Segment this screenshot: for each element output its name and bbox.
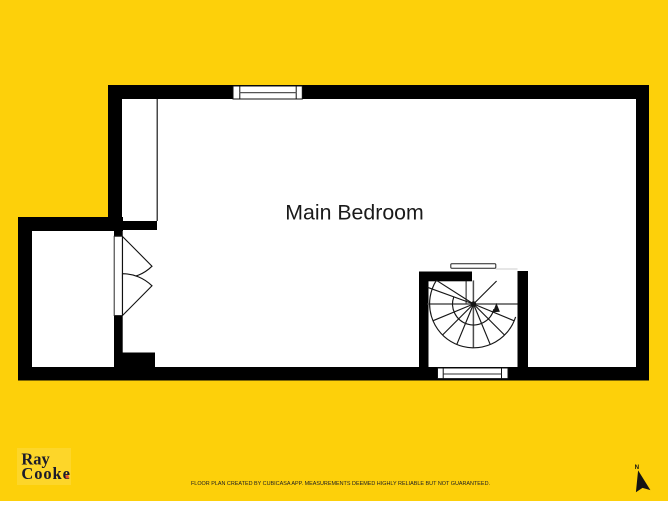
- svg-text:Cooke: Cooke: [21, 464, 70, 483]
- svg-text:N: N: [635, 464, 640, 471]
- svg-text:FLOOR PLAN CREATED BY CUBICASA: FLOOR PLAN CREATED BY CUBICASA APP. MEAS…: [191, 481, 491, 487]
- svg-text:Main Bedroom: Main Bedroom: [285, 201, 424, 225]
